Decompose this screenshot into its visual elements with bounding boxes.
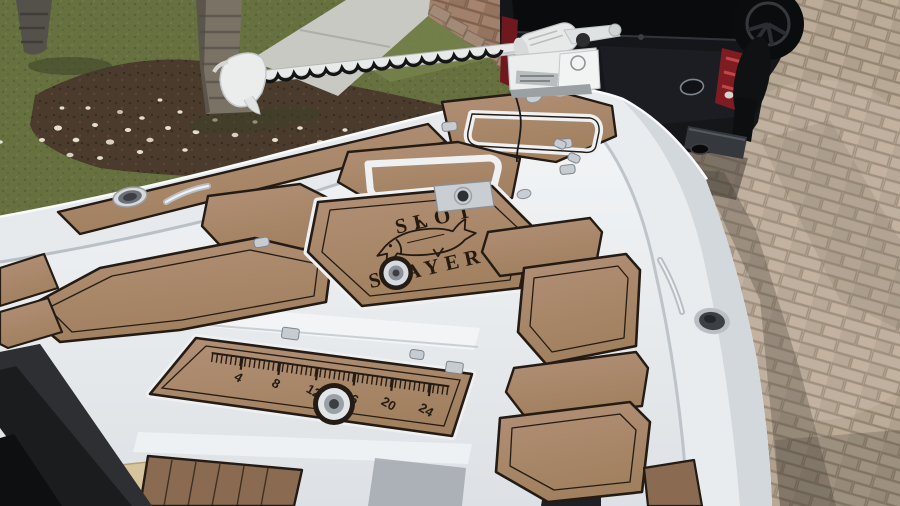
deck-plate-ruler: [313, 383, 355, 425]
palm-shadow: [28, 57, 112, 75]
photo-boat-driveway: SLOT SLAYER: [0, 0, 900, 506]
corner-shadow: [775, 430, 900, 506]
deck-plate: [379, 256, 413, 290]
latch-plate: [434, 181, 494, 212]
cover-latch: [638, 34, 644, 40]
reverse-light: [725, 92, 734, 99]
motor-mount: [508, 48, 600, 98]
photo-canvas: SLOT SLAYER: [0, 0, 900, 506]
arm-knob: [609, 24, 621, 36]
exhaust-tip: [691, 144, 709, 154]
arm-pivot: [576, 33, 590, 47]
stbd-corner-pad: [644, 460, 702, 506]
